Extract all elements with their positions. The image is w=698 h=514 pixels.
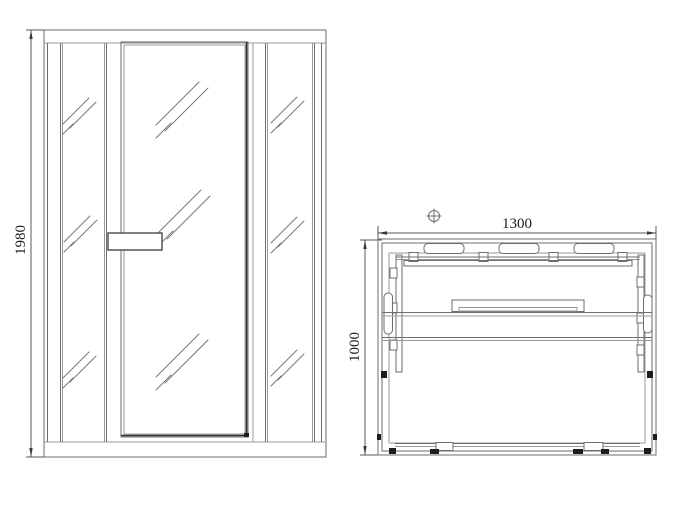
arrowhead-icon xyxy=(29,30,32,39)
left-glass-panel xyxy=(61,43,107,442)
dimension-width: 1300 xyxy=(378,216,656,241)
position-marker-icon xyxy=(427,209,442,224)
wall-inner-outline xyxy=(382,243,652,451)
door-handle xyxy=(108,233,162,250)
glass-hatch-icon xyxy=(64,216,97,252)
plan-view: 1300 1000 xyxy=(347,209,657,456)
joint-mark xyxy=(389,448,396,454)
dimension-label-height: 1980 xyxy=(13,225,29,255)
glass-hatch-icon xyxy=(63,352,96,388)
wall-outer-outline xyxy=(378,239,656,455)
arrowhead-icon xyxy=(647,231,656,234)
track-roller xyxy=(584,443,603,451)
glass-door xyxy=(108,42,253,442)
arrowhead-icon xyxy=(29,448,32,457)
dimension-depth: 1000 xyxy=(347,240,382,455)
technical-drawing: 1980 1300 1000 xyxy=(0,0,698,514)
panel-clip xyxy=(637,345,644,355)
joint-mark xyxy=(573,449,583,454)
right-glass-panel xyxy=(266,43,315,442)
panel-clip xyxy=(390,340,397,350)
panel-clip xyxy=(637,277,644,287)
center-shelf xyxy=(452,300,584,312)
joint-mark xyxy=(381,371,387,378)
glass-hatch-icon xyxy=(271,217,304,253)
backrest-cushion xyxy=(499,244,539,254)
glass-hatch-icon xyxy=(271,350,304,386)
front-elevation-view: 1980 xyxy=(13,30,326,457)
joint-mark xyxy=(647,371,653,378)
backrest-cushion xyxy=(574,244,614,254)
glass-hatch-icon xyxy=(271,97,304,133)
glass-hatch-icon xyxy=(156,334,208,390)
arrowhead-icon xyxy=(378,231,387,234)
joint-mark xyxy=(377,434,381,440)
panel-clip xyxy=(390,268,397,278)
arrowhead-icon xyxy=(363,446,366,455)
backrest-cushion xyxy=(424,244,464,254)
glass-hatch-icon xyxy=(156,82,208,138)
dimension-label-depth: 1000 xyxy=(347,332,363,362)
door-corner-mark xyxy=(244,433,249,437)
panel-clip xyxy=(637,313,644,323)
bench-back-edge xyxy=(404,261,632,267)
wall-handle-right xyxy=(644,295,653,333)
wall-handle-left xyxy=(384,293,393,334)
joint-mark xyxy=(601,449,609,454)
cabin-outer-frame xyxy=(44,30,326,457)
dimension-label-width: 1300 xyxy=(502,216,532,232)
glass-hatch-icon xyxy=(63,98,96,134)
joint-mark xyxy=(430,449,439,454)
dimension-height: 1980 xyxy=(13,30,44,457)
joint-mark xyxy=(653,434,657,440)
arrowhead-icon xyxy=(363,240,366,249)
glass-hatch-icon xyxy=(158,190,210,246)
drawing-sheet: 1980 1300 1000 xyxy=(0,0,698,514)
joint-mark xyxy=(644,448,651,454)
